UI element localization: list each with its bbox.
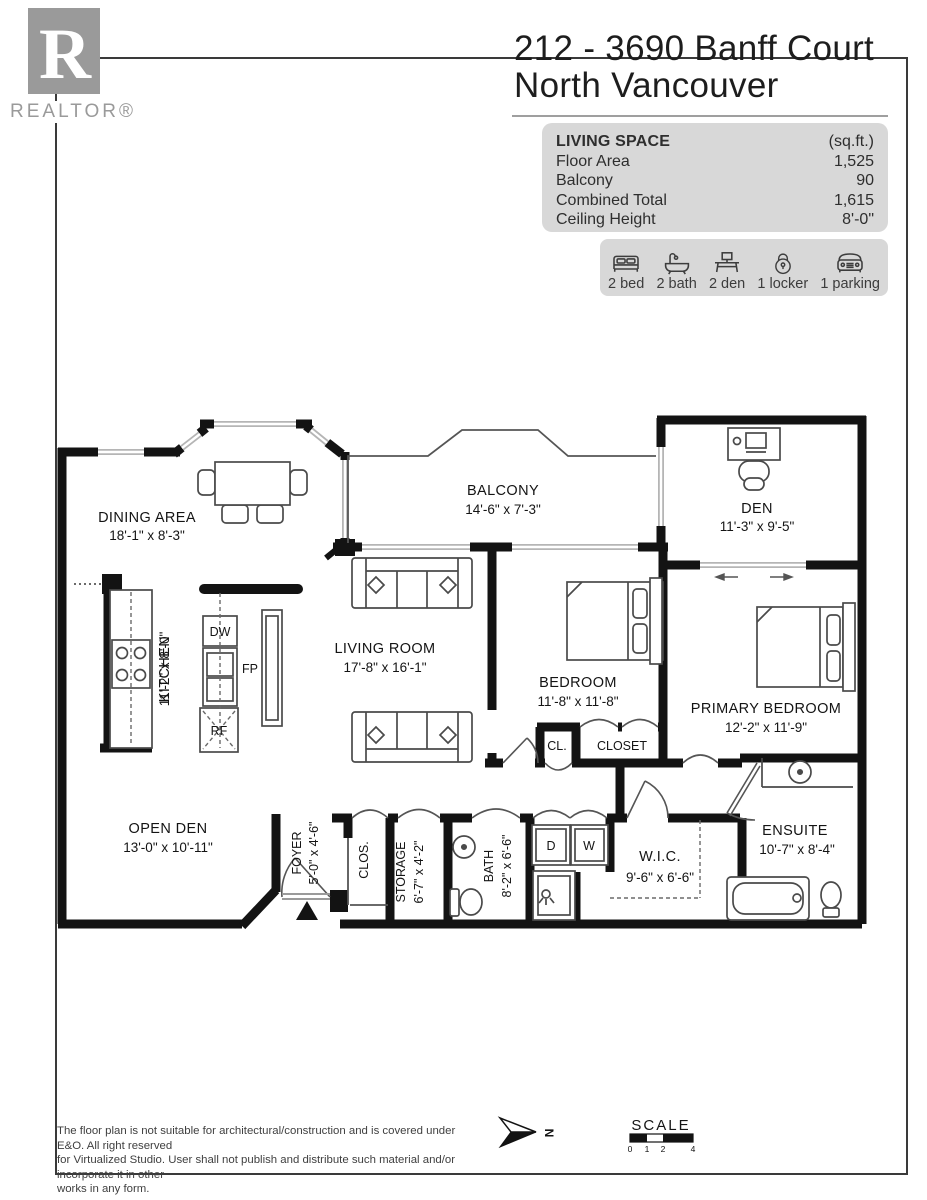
svg-text:1: 1 bbox=[645, 1144, 650, 1154]
bath-label: BATH bbox=[482, 850, 496, 882]
primary-bedroom-dims: 12'-2" x 11'-9" bbox=[725, 720, 807, 735]
storage-dims: 6'-7" x 4'-2" bbox=[412, 841, 426, 904]
refrigerator-label: RF bbox=[211, 724, 228, 738]
north-label: N bbox=[542, 1129, 556, 1138]
entry-arrow bbox=[296, 901, 318, 920]
wic-dims: 9'-6" x 6'-6" bbox=[626, 870, 694, 885]
closet-label: CLOSET bbox=[597, 739, 647, 753]
dining-chair bbox=[257, 505, 283, 523]
disclaimer-text: The floor plan is not suitable for archi… bbox=[57, 1124, 461, 1197]
open-den-label: OPEN DEN bbox=[129, 821, 208, 837]
den-dims: 11'-3" x 9'-5" bbox=[720, 519, 795, 534]
open-den-dims: 13'-0" x 10'-11" bbox=[123, 840, 213, 855]
balcony-dims: 14'-6" x 7'-3" bbox=[465, 502, 541, 517]
bedroom-label: BEDROOM bbox=[539, 675, 617, 691]
dining-table bbox=[215, 462, 290, 505]
ensuite-label: ENSUITE bbox=[762, 823, 828, 839]
dining-area-dims: 18'-1" x 8'-3" bbox=[109, 528, 185, 543]
fireplace-label: FP bbox=[242, 662, 258, 676]
toilet bbox=[450, 889, 482, 916]
shower bbox=[533, 871, 575, 920]
floor-plan-page: R REALTOR® 212 - 3690 Banff Court North … bbox=[0, 0, 927, 1200]
wic-label: W.I.C. bbox=[639, 849, 681, 865]
bedroom-dims: 11'-8" x 11'-8" bbox=[537, 694, 618, 709]
washer-label: W bbox=[583, 839, 595, 853]
living-room-label: LIVING ROOM bbox=[334, 641, 435, 657]
bed bbox=[757, 603, 855, 691]
kitchen-dims: 11'-2" x 8'-0" bbox=[157, 632, 172, 707]
clos-label: CLOS. bbox=[357, 841, 371, 879]
bath-dims: 8'-2" x 6'-6" bbox=[500, 835, 514, 898]
ensuite-dims: 10'-7" x 8'-4" bbox=[759, 842, 835, 857]
svg-text:4: 4 bbox=[691, 1144, 696, 1154]
svg-text:2: 2 bbox=[661, 1144, 666, 1154]
dishwasher-label: DW bbox=[210, 625, 231, 639]
den-label: DEN bbox=[741, 501, 773, 517]
foyer-label: FOYER bbox=[290, 831, 304, 874]
scale-bar: SCALE 0 1 2 4 bbox=[628, 1117, 696, 1154]
balcony-label: BALCONY bbox=[467, 483, 539, 499]
bathtub bbox=[727, 877, 809, 920]
cl-label: CL. bbox=[547, 739, 566, 753]
svg-text:0: 0 bbox=[628, 1144, 633, 1154]
dining-area-label: DINING AREA bbox=[98, 510, 196, 526]
foyer-dims: 5'-0" x 4'-6" bbox=[307, 822, 321, 885]
sofa bbox=[352, 712, 472, 762]
living-room-dims: 17'-8" x 16'-1" bbox=[343, 660, 426, 675]
desk bbox=[728, 428, 780, 490]
bed bbox=[567, 578, 663, 664]
sofa bbox=[352, 558, 472, 608]
bath-sink bbox=[453, 836, 475, 858]
dining-chair bbox=[290, 470, 307, 495]
storage-label: STORAGE bbox=[394, 842, 408, 903]
scale-title: SCALE bbox=[631, 1117, 690, 1134]
toilet bbox=[821, 882, 841, 917]
floor-plan: DINING AREA 18'-1" x 8'-3" BALCONY 14'-6… bbox=[0, 0, 927, 1200]
dining-chair bbox=[222, 505, 248, 523]
dining-chair bbox=[198, 470, 215, 495]
dryer-label: D bbox=[546, 839, 555, 853]
primary-bedroom-label: PRIMARY BEDROOM bbox=[691, 701, 842, 717]
north-arrow: N bbox=[500, 1118, 556, 1147]
